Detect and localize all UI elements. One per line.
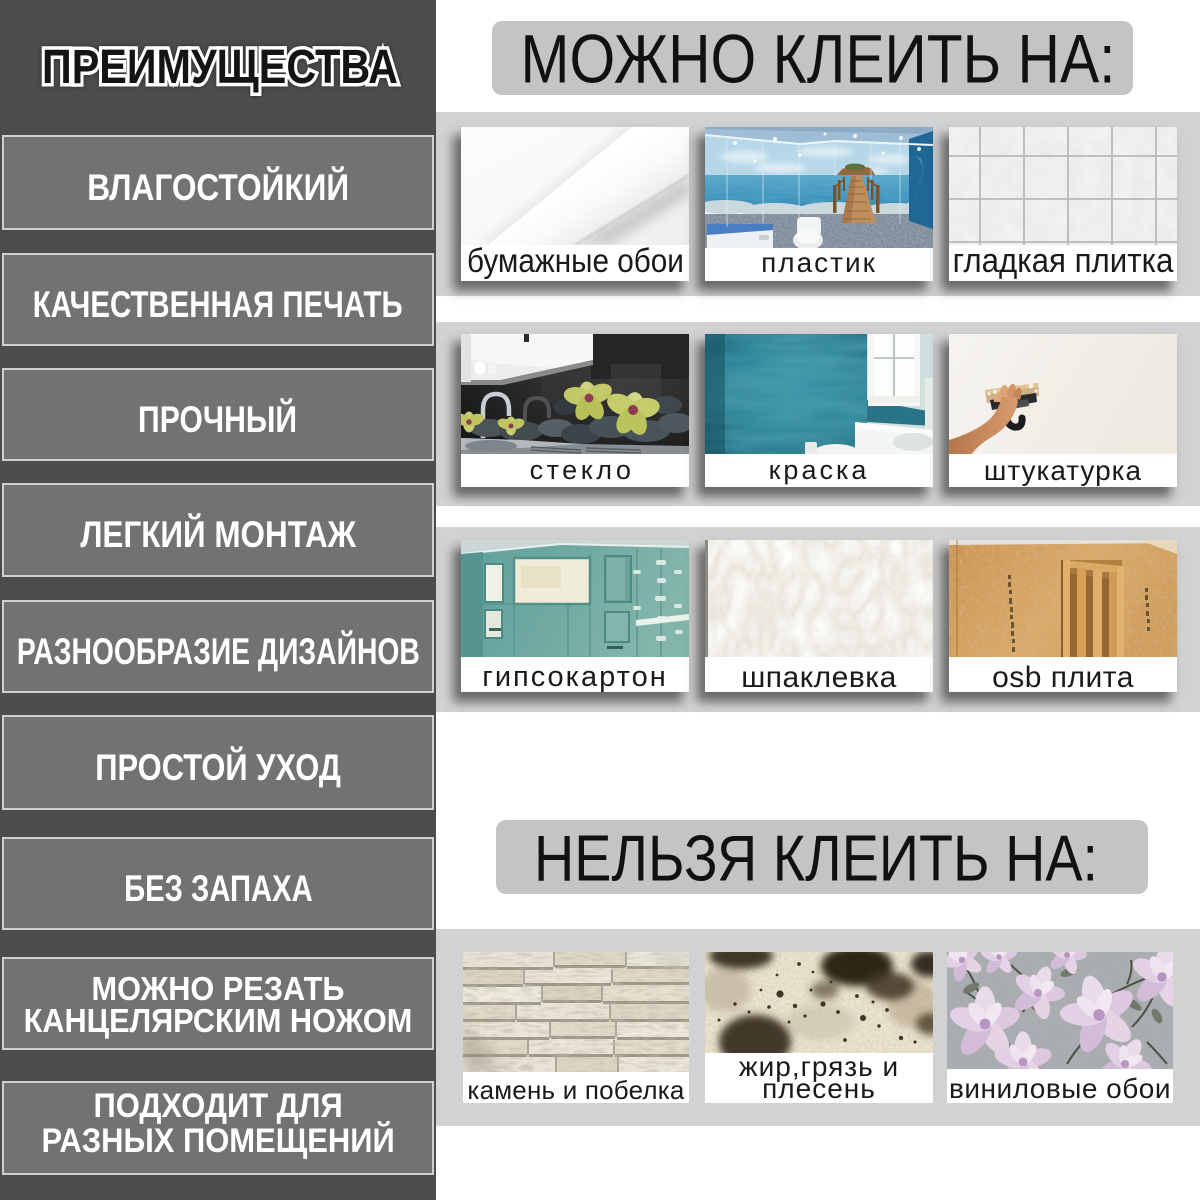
svg-text:НЕЛЬЗЯ КЛЕИТЬ НА:: НЕЛЬЗЯ КЛЕИТЬ НА: [534, 822, 1098, 895]
svg-text:МОЖНО КЛЕИТЬ НА:: МОЖНО КЛЕИТЬ НА: [521, 21, 1116, 98]
